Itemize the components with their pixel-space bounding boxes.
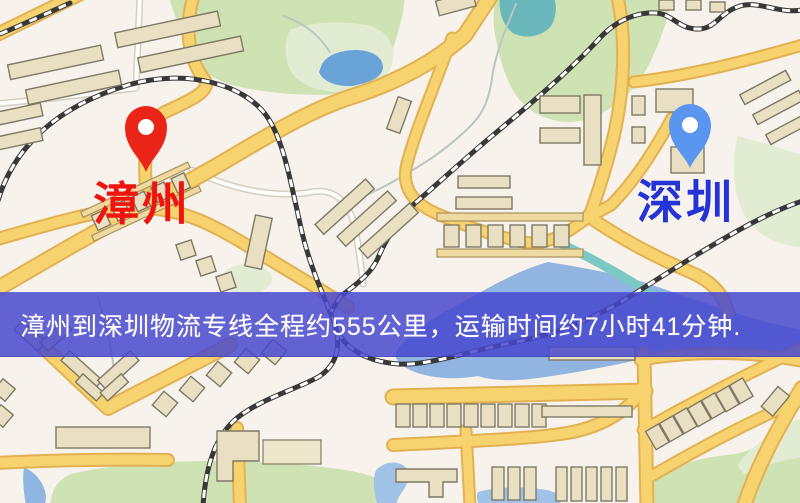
destination-pin-inner-circle <box>682 117 698 133</box>
map-canvas: 漳州 深圳 <box>0 0 800 503</box>
origin-pin-inner-circle <box>138 119 154 135</box>
route-banner-text: 漳州到深圳物流专线全程约555公里，运输时间约7小时41分钟. <box>20 307 741 343</box>
origin-label: 漳州 <box>93 179 191 230</box>
destination-label: 深圳 <box>637 177 735 228</box>
map-viewport[interactable]: 漳州 深圳 漳州到深圳物流专线全程约555公里，运输时间约7小时41分钟. <box>0 0 800 503</box>
route-banner: 漳州到深圳物流专线全程约555公里，运输时间约7小时41分钟. <box>0 292 800 357</box>
